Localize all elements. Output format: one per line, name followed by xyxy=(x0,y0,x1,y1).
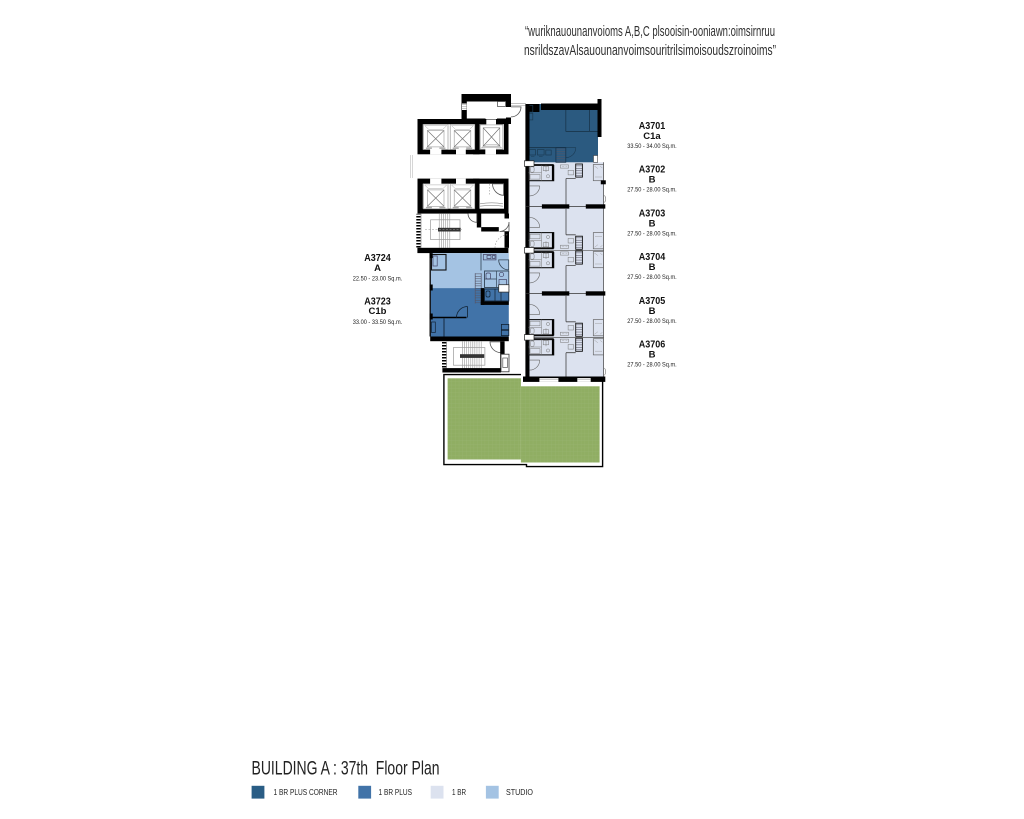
svg-text:27.50 - 28.00 Sq.m.: 27.50 - 28.00 Sq.m. xyxy=(627,362,677,369)
svg-text:27.50 - 28.00 Sq.m.: 27.50 - 28.00 Sq.m. xyxy=(627,318,677,325)
svg-text:C1a: C1a xyxy=(643,131,661,142)
svg-text:nsrildszavAlsauounanvoimsourit: nsrildszavAlsauounanvoimsouritrilsimoiso… xyxy=(524,42,776,59)
svg-text:C1b: C1b xyxy=(369,306,387,317)
svg-text:A: A xyxy=(374,263,381,274)
svg-text:B: B xyxy=(649,350,656,361)
svg-text:33.50 - 34.00 Sq.m.: 33.50 - 34.00 Sq.m. xyxy=(627,143,677,150)
svg-text:“wuriknauounanvoioms A,B,C pls: “wuriknauounanvoioms A,B,C plsooisin-oon… xyxy=(525,23,775,40)
svg-text:1 BR: 1 BR xyxy=(452,788,466,797)
svg-text:27.50 - 28.00 Sq.m.: 27.50 - 28.00 Sq.m. xyxy=(627,230,677,237)
svg-text:33.00 - 33.50 Sq.m.: 33.00 - 33.50 Sq.m. xyxy=(353,319,403,326)
svg-text:STUDIO: STUDIO xyxy=(506,788,533,797)
svg-text:B: B xyxy=(649,175,656,186)
svg-text:22.50 - 23.00 Sq.m.: 22.50 - 23.00 Sq.m. xyxy=(353,276,403,283)
svg-text:27.50 - 28.00 Sq.m.: 27.50 - 28.00 Sq.m. xyxy=(627,187,677,194)
svg-text:B: B xyxy=(649,218,656,229)
svg-text:27.50 - 28.00 Sq.m.: 27.50 - 28.00 Sq.m. xyxy=(627,274,677,281)
svg-text:1 BR PLUS CORNER: 1 BR PLUS CORNER xyxy=(274,788,338,797)
svg-text:1 BR PLUS: 1 BR PLUS xyxy=(379,788,413,797)
svg-text:BUILDING A : 37th Floor Plan: BUILDING A : 37th Floor Plan xyxy=(252,758,440,780)
svg-text:B: B xyxy=(649,262,656,273)
svg-text:B: B xyxy=(649,306,656,317)
